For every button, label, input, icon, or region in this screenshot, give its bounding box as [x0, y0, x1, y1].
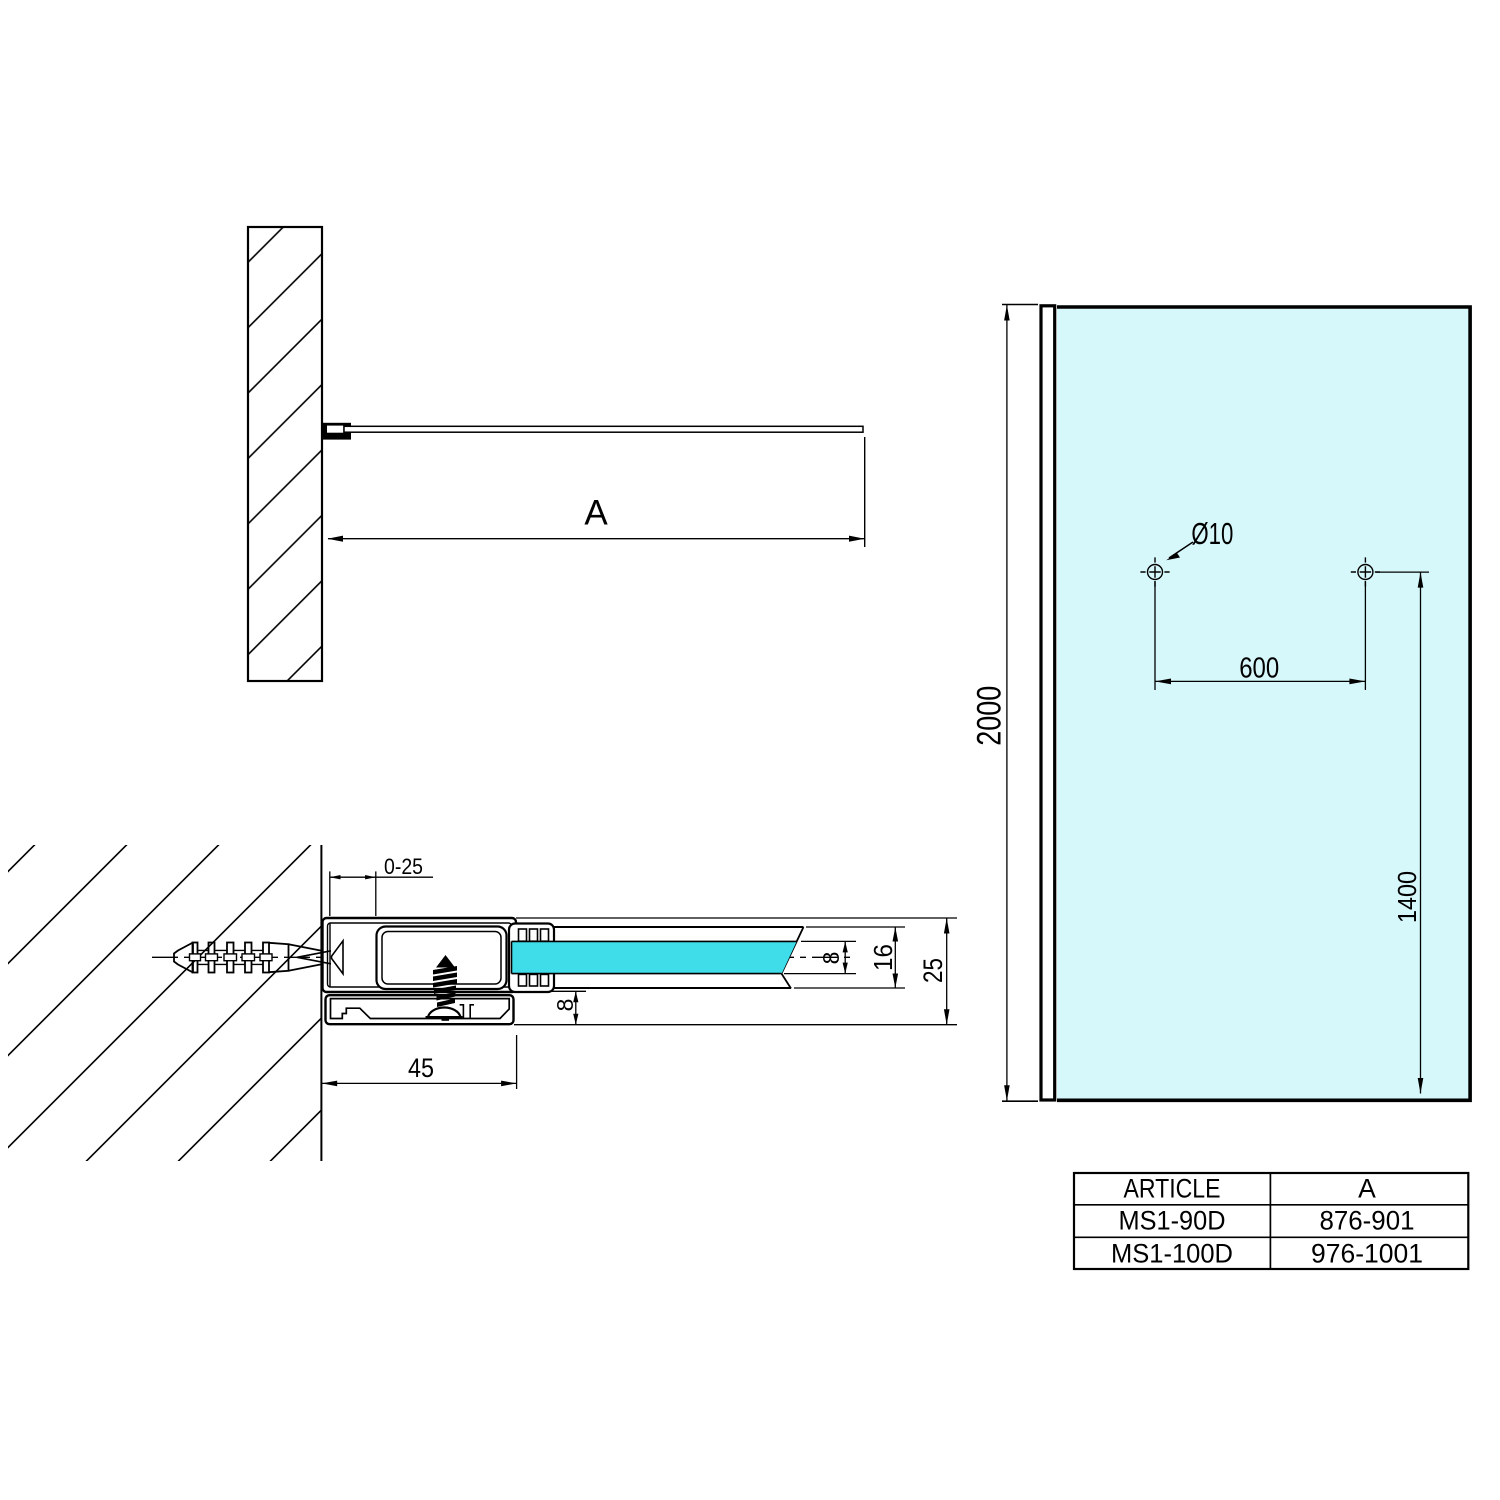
svg-text:25: 25	[918, 958, 948, 983]
svg-text:0-25: 0-25	[384, 854, 423, 879]
svg-text:MS1-100D: MS1-100D	[1111, 1238, 1233, 1268]
svg-text:8: 8	[818, 952, 844, 965]
svg-text:976-1001: 976-1001	[1311, 1238, 1423, 1268]
svg-text:A: A	[1358, 1174, 1376, 1204]
svg-text:876-901: 876-901	[1320, 1206, 1415, 1236]
svg-text:ARTICLE: ARTICLE	[1124, 1174, 1221, 1204]
svg-text:16: 16	[868, 944, 898, 971]
svg-text:A: A	[584, 494, 608, 533]
svg-text:600: 600	[1239, 653, 1279, 685]
svg-text:1400: 1400	[1392, 871, 1422, 923]
svg-text:Ø10: Ø10	[1191, 517, 1233, 551]
svg-text:2000: 2000	[971, 686, 1009, 746]
svg-text:8: 8	[552, 999, 578, 1012]
svg-text:MS1-90D: MS1-90D	[1119, 1206, 1226, 1236]
svg-text:45: 45	[408, 1053, 434, 1083]
